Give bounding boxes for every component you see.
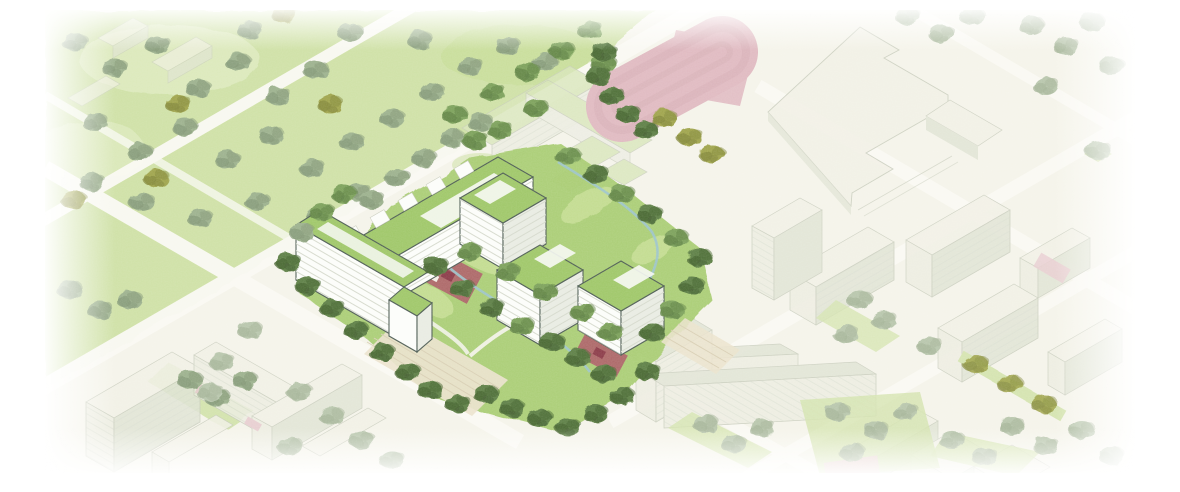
architectural-rendering bbox=[0, 0, 1180, 492]
margin-right bbox=[1135, 0, 1180, 492]
margin-top bbox=[0, 0, 1180, 10]
paper-texture bbox=[45, 10, 1135, 473]
rendering-canvas bbox=[0, 0, 1180, 492]
margin-bottom bbox=[0, 473, 1180, 492]
margin-left bbox=[0, 0, 45, 492]
